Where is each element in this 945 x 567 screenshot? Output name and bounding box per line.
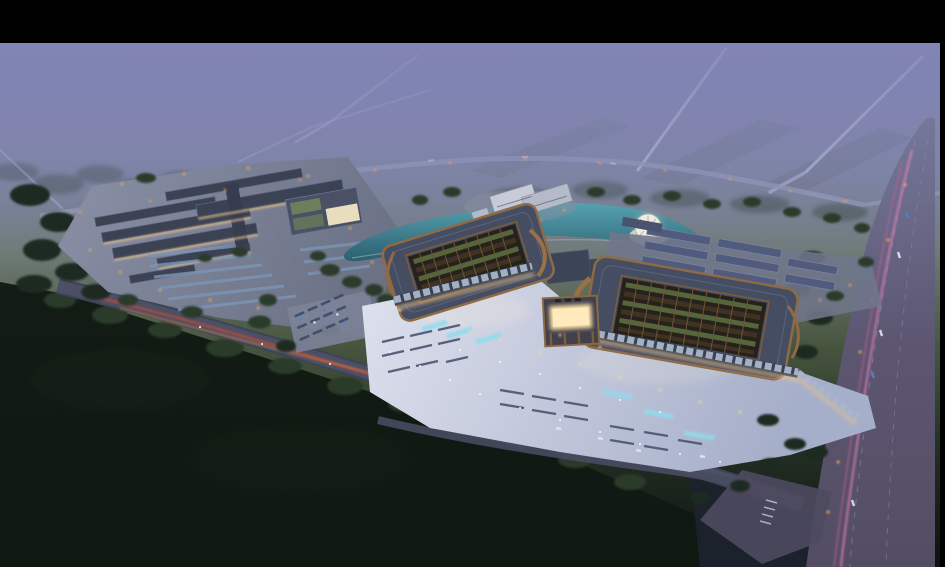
gate-signs <box>555 299 581 300</box>
letterbox-right-bar <box>940 0 945 567</box>
gate-lit-lattice <box>552 307 589 327</box>
rendering-viewport <box>0 0 945 567</box>
letterbox-top-bar <box>0 0 945 43</box>
aerial-rendering <box>0 0 945 567</box>
entrance-gate <box>543 296 599 347</box>
